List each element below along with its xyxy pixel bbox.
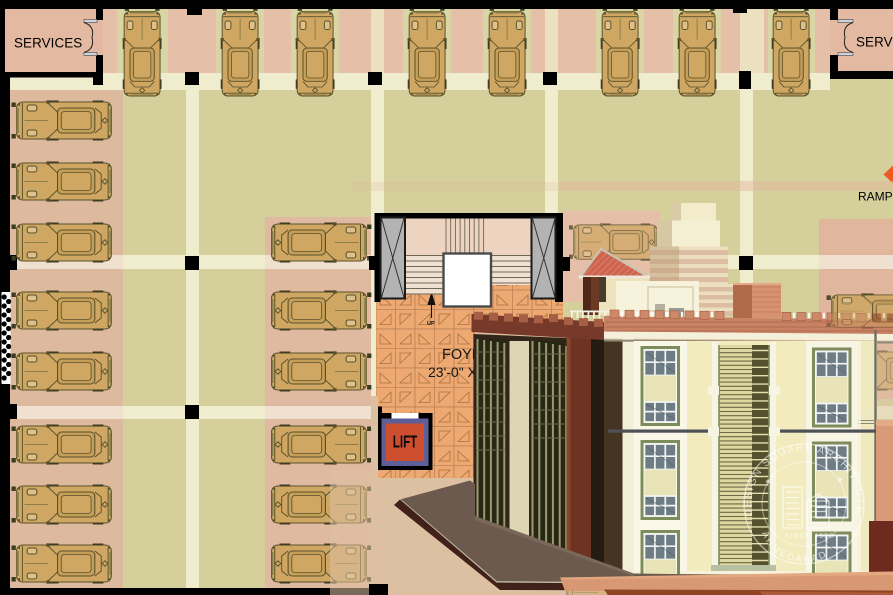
svg-text:SINCE 1998: SINCE 1998 (785, 533, 834, 540)
svg-text:LIFT: LIFT (393, 432, 418, 452)
svg-text:SERVICES: SERVICES (856, 35, 893, 50)
svg-text:RAMP: RAMP (858, 190, 893, 204)
svg-text:SERVICES: SERVICES (14, 36, 82, 51)
svg-text:UP: UP (427, 321, 435, 327)
